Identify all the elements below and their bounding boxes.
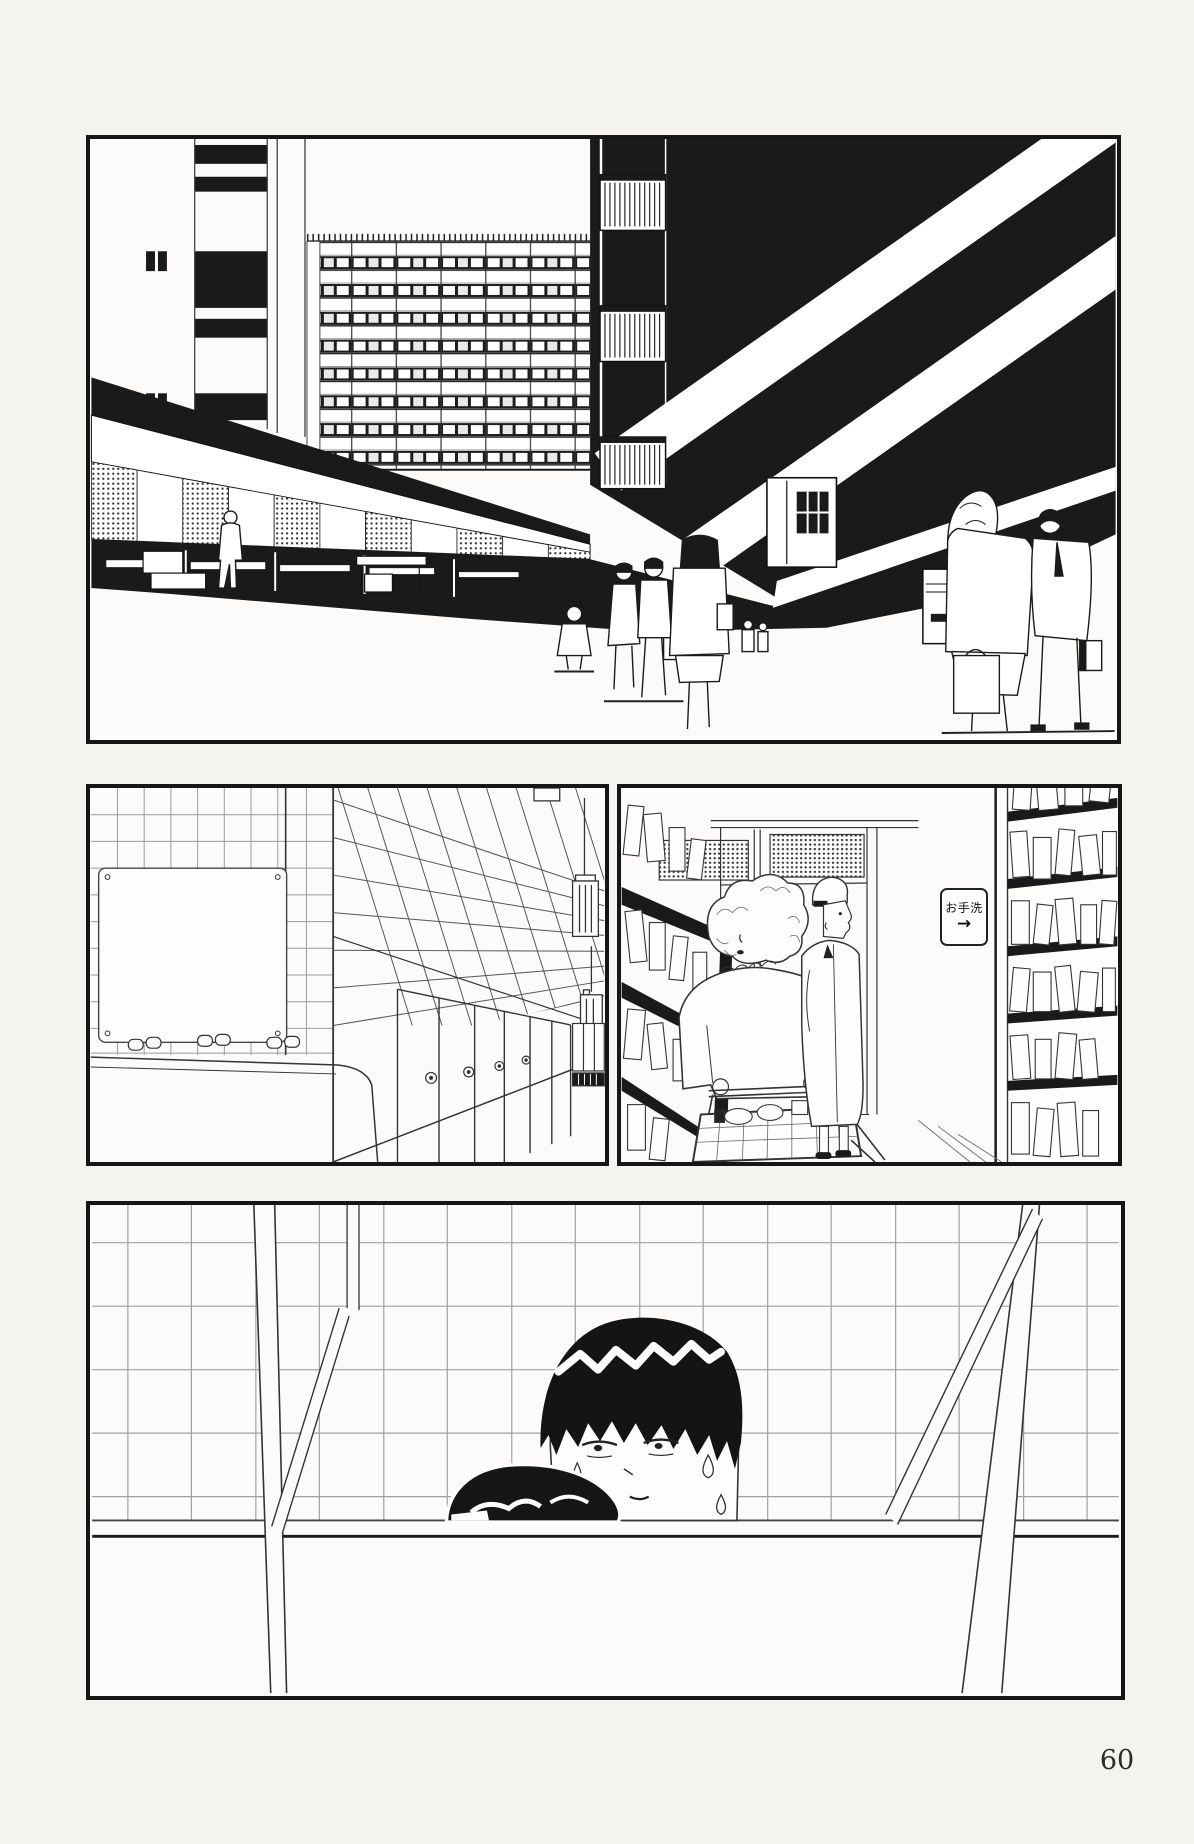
apartment-block — [307, 237, 590, 469]
plaza-kiosk — [767, 478, 837, 567]
panel-city-plaza — [86, 135, 1121, 744]
corridor-drawing — [90, 788, 605, 1162]
city-plaza-drawing — [90, 139, 1117, 740]
supermarket-drawing — [621, 788, 1118, 1162]
restroom-sign: お手洗 → — [940, 888, 988, 946]
right-shelves — [1002, 788, 1118, 1162]
bath-drawing — [90, 1205, 1121, 1696]
restroom-sign-text: お手洗 — [945, 902, 983, 914]
end-window — [573, 1023, 605, 1085]
restroom-arrow-icon: → — [957, 916, 971, 933]
page-number: 60 — [1094, 1745, 1140, 1776]
notice-board — [99, 868, 287, 1042]
manga-page: お手洗 → — [0, 0, 1194, 1844]
balcony-railings — [600, 175, 666, 489]
panel-bathhouse-corridor — [86, 784, 609, 1166]
long-coat — [802, 940, 863, 1126]
panel-bath-peeking — [86, 1201, 1125, 1700]
panel-supermarket: お手洗 → — [617, 784, 1122, 1166]
